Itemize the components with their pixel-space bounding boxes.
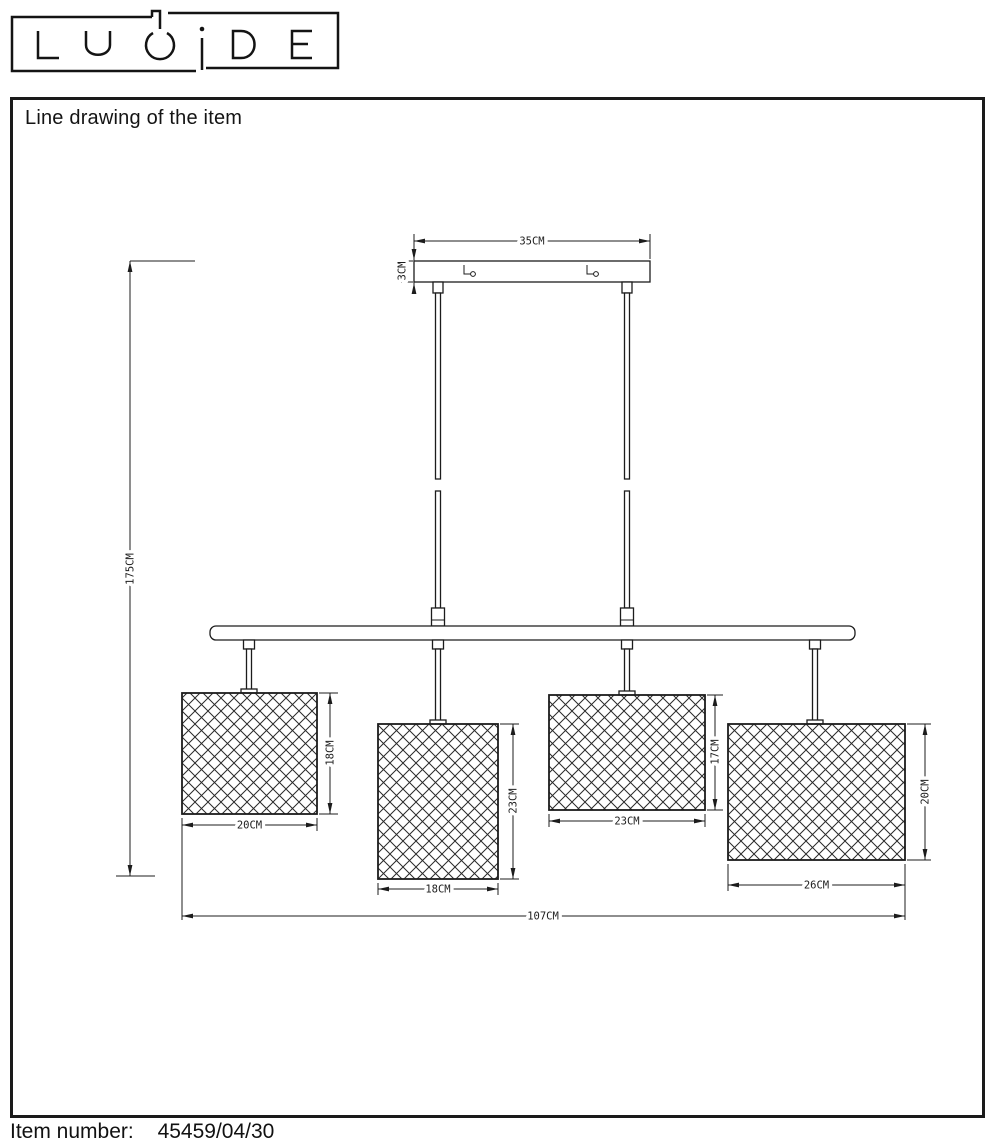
ceiling-canopy: [414, 261, 650, 282]
dim-shade4-width: 26CM: [728, 864, 905, 920]
dim-shade1-width: 20CM: [182, 818, 317, 920]
shade-1: [182, 693, 317, 814]
dim-shade2-height: 23CM: [500, 724, 520, 879]
item-number-label: Item number:: [10, 1120, 134, 1143]
dim-shade1-height: 18CM: [319, 693, 338, 814]
dim-overall-width: 107CM: [182, 911, 905, 923]
dim-label: 20CM: [920, 779, 932, 804]
dim-label: 175CM: [125, 553, 137, 585]
shade-4: [728, 724, 905, 860]
dim-label: 17CM: [710, 739, 722, 764]
dim-label: 18CM: [325, 740, 337, 765]
pendant-lamp-drawing: 35CM 3CM 175CM 20CM: [13, 100, 982, 1115]
dim-label: 35CM: [519, 236, 544, 248]
dim-shade3-height: 17CM: [707, 695, 723, 810]
shade-3: [549, 695, 705, 810]
hanger-2: [430, 640, 446, 724]
shade-2: [378, 724, 498, 879]
hanger-3: [619, 640, 635, 695]
dim-label: 23CM: [508, 788, 520, 813]
dim-label: 26CM: [804, 880, 829, 892]
item-number-value: 45459/04/30: [158, 1120, 275, 1143]
lucide-logo: [0, 0, 350, 80]
dim-canopy-height: 3CM: [397, 250, 415, 293]
item-number-row: Item number: 45459/04/30: [10, 1120, 274, 1144]
dim-label: 3CM: [397, 262, 409, 281]
suspension-rod-left: [432, 282, 445, 640]
dim-shade3-width: 23CM: [549, 814, 705, 828]
dim-label: 23CM: [614, 816, 639, 828]
horizontal-bar: [210, 626, 855, 640]
hanger-1: [241, 640, 257, 693]
dim-shade2-width: 18CM: [378, 883, 498, 896]
dim-label: 18CM: [425, 884, 450, 896]
hanger-4: [807, 640, 823, 724]
line-drawing-panel: Line drawing of the item: [10, 97, 985, 1118]
suspension-rod-right: [621, 282, 634, 640]
dim-shade4-height: 20CM: [907, 724, 932, 860]
dim-label: 20CM: [237, 820, 262, 832]
lucide-logo-icon: [12, 11, 338, 71]
dim-label: 107CM: [527, 911, 559, 923]
dim-canopy-width: 35CM: [414, 234, 650, 259]
spec-sheet-page: Line drawing of the item: [0, 0, 997, 1148]
